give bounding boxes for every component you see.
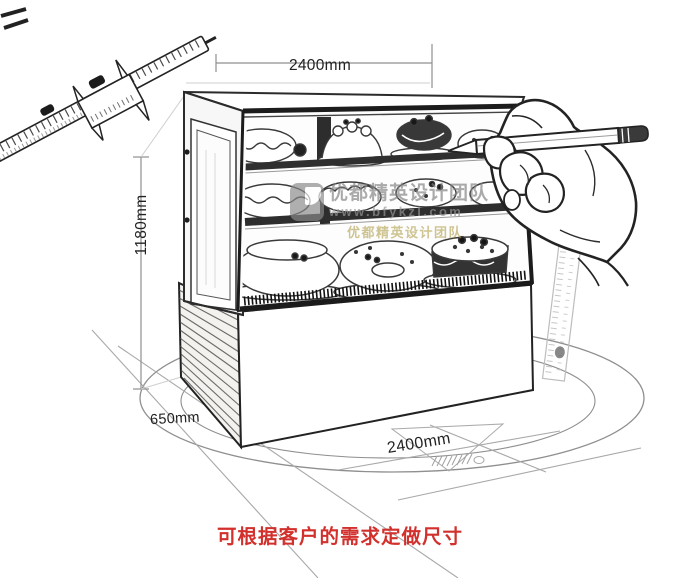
dimension-width-top: 2400mm xyxy=(286,57,354,75)
watermark-logo-icon xyxy=(290,183,324,221)
watermark: 优都精英设计团队 www.bfykzl.com xyxy=(290,183,489,221)
dimension-depth: 650mm xyxy=(150,410,197,428)
watermark-team-name: 优都精英设计团队 xyxy=(329,183,489,204)
watermark-gold-mark: 优都精英设计团队 xyxy=(347,222,463,241)
customization-caption: 可根据客户的需求定做尺寸 xyxy=(0,520,680,549)
product-illustration-page: 优都精英设计团队 www.bfykzl.com 优都精英设计团队 2400mm … xyxy=(0,0,680,578)
watermark-website: www.bfykzl.com xyxy=(329,204,489,219)
dimension-height-left: 1180mm xyxy=(133,190,151,260)
line-art-illustration xyxy=(0,0,680,578)
